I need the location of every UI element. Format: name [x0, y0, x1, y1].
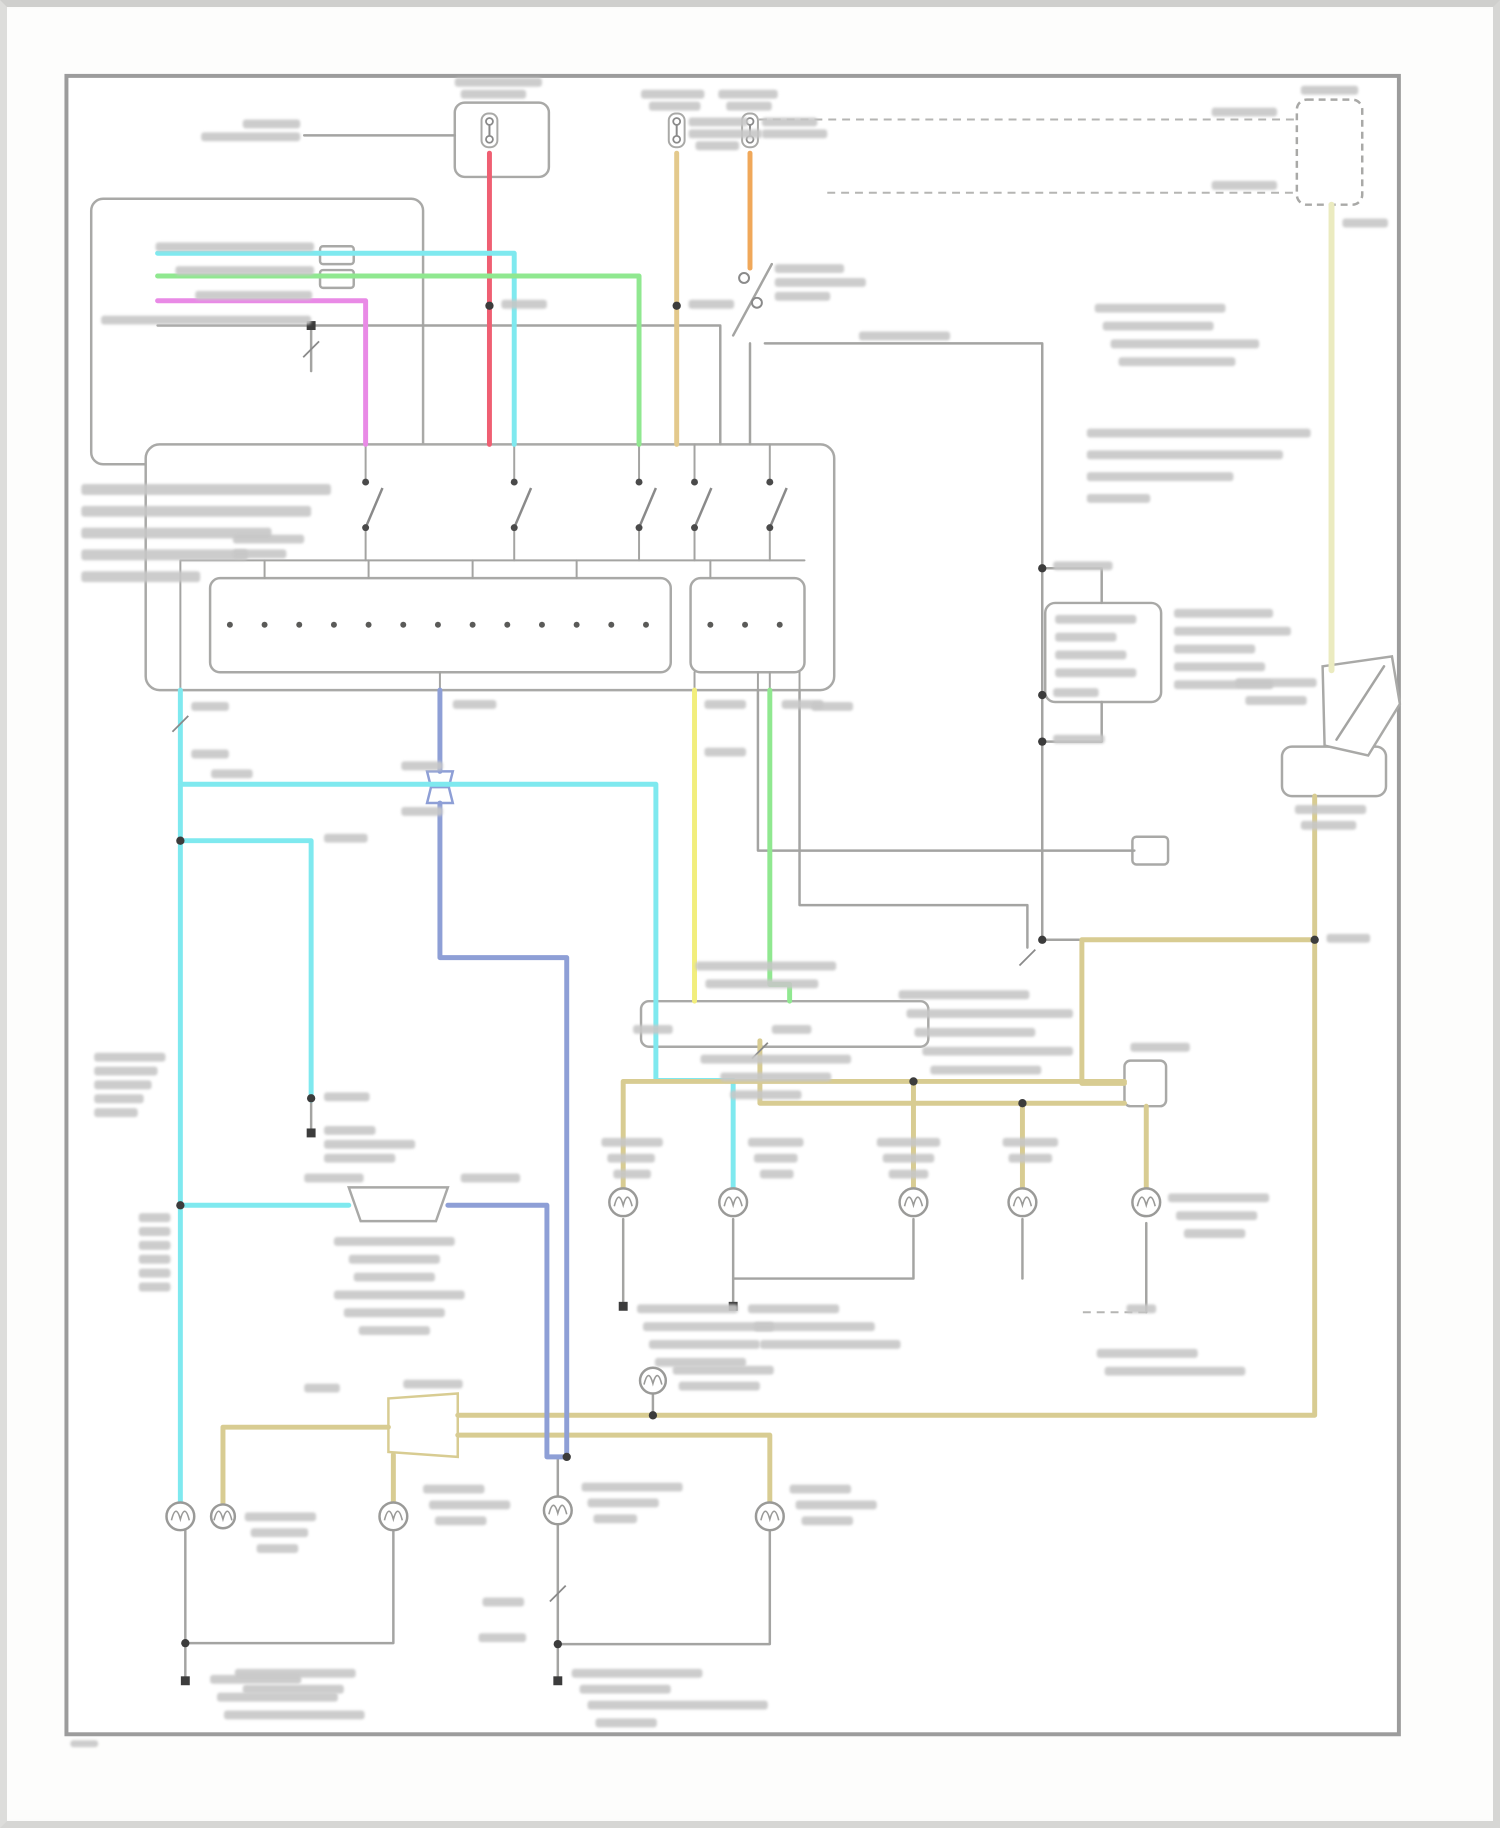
fuse-icon — [486, 118, 493, 125]
label-smudge — [1295, 805, 1366, 814]
label-smudge — [859, 331, 950, 340]
label-smudge — [1301, 86, 1358, 95]
label-smudge — [572, 1669, 703, 1678]
label-smudge — [1003, 1138, 1058, 1147]
label-smudge — [726, 102, 772, 111]
label-smudge — [304, 1384, 340, 1393]
label-smudge — [1087, 472, 1234, 481]
label-smudge — [1087, 494, 1150, 503]
label-smudge — [907, 1009, 1073, 1018]
splice-dot — [1038, 936, 1046, 944]
label-smudge — [704, 748, 746, 757]
label-smudge — [1176, 1211, 1257, 1220]
label-smudge — [718, 90, 777, 99]
label-smudge — [613, 1170, 651, 1179]
label-smudge — [655, 1358, 746, 1367]
label-smudge — [700, 1055, 851, 1064]
label-smudge — [1130, 1043, 1189, 1052]
splice-dot — [673, 302, 681, 310]
label-smudge — [324, 1126, 376, 1135]
switch-icon — [691, 524, 698, 531]
lamp-icon — [756, 1502, 784, 1530]
contact-ring — [739, 273, 749, 283]
label-smudge — [94, 1080, 151, 1089]
contact-dot — [608, 622, 614, 628]
label-smudge — [1212, 181, 1277, 190]
lamp-icon — [379, 1502, 407, 1530]
splice-dot — [176, 837, 184, 845]
label-smudge — [233, 549, 286, 558]
label-smudge — [704, 700, 746, 709]
label-smudge — [696, 962, 837, 971]
label-smudge — [94, 1053, 165, 1062]
label-smudge — [359, 1326, 430, 1335]
label-smudge — [748, 1138, 803, 1147]
label-smudge — [588, 1498, 659, 1507]
label-smudge — [334, 1290, 465, 1299]
label-smudge — [775, 264, 844, 273]
label-smudge — [748, 1304, 839, 1313]
label-smudge — [501, 300, 547, 309]
label-smudge — [593, 1514, 637, 1523]
component-box — [320, 270, 354, 288]
contact-dot — [742, 622, 748, 628]
lamp-icon — [1132, 1188, 1160, 1216]
label-smudge — [235, 1669, 356, 1678]
switch-icon — [636, 479, 643, 486]
label-smudge — [70, 1740, 98, 1747]
label-smudge — [877, 1138, 940, 1147]
label-smudge — [324, 1140, 415, 1149]
splice-dot — [563, 1453, 571, 1461]
label-smudge — [175, 266, 314, 275]
label-smudge — [94, 1094, 144, 1103]
label-smudge — [479, 1633, 527, 1642]
label-smudge — [191, 750, 229, 759]
label-smudge — [762, 118, 817, 127]
label-smudge — [139, 1227, 171, 1236]
switch-icon — [766, 479, 773, 486]
connector-shape — [349, 1187, 448, 1221]
label-smudge — [790, 1485, 851, 1494]
label-smudge — [802, 1516, 854, 1525]
label-smudge — [304, 1174, 363, 1183]
contact-dot — [331, 622, 337, 628]
label-smudge — [344, 1308, 445, 1317]
splice-dot — [1038, 691, 1046, 699]
label-smudge — [1009, 1154, 1053, 1163]
splice-dot — [176, 1201, 184, 1209]
label-smudge — [195, 291, 312, 300]
label-smudge — [243, 119, 300, 128]
label-smudge — [689, 300, 735, 309]
label-smudge — [637, 1304, 738, 1313]
contact-dot — [296, 622, 302, 628]
lamp-icon — [544, 1497, 572, 1525]
label-smudge — [1055, 650, 1126, 659]
label-smudge — [595, 1718, 656, 1727]
lamp-icon — [719, 1188, 747, 1216]
label-smudge — [403, 1380, 462, 1389]
label-smudge — [139, 1241, 171, 1250]
label-smudge — [429, 1500, 510, 1509]
label-smudge — [1301, 821, 1356, 830]
splice-dot — [1038, 564, 1046, 572]
label-smudge — [1053, 735, 1105, 744]
label-smudge — [81, 549, 247, 560]
label-smudge — [649, 102, 701, 111]
label-smudge — [720, 1073, 831, 1082]
contact-dot — [707, 622, 713, 628]
component-box — [1297, 100, 1362, 205]
label-smudge — [1174, 627, 1291, 636]
contact-dot — [227, 622, 233, 628]
label-smudge — [401, 761, 443, 770]
label-smudge — [455, 78, 542, 87]
label-smudge — [1053, 561, 1112, 570]
label-smudge — [582, 1483, 683, 1492]
label-smudge — [201, 132, 300, 141]
splice-dot — [649, 1411, 657, 1419]
label-smudge — [453, 700, 497, 709]
contact-dot — [400, 622, 406, 628]
contact-dot — [643, 622, 649, 628]
label-smudge — [772, 1025, 812, 1034]
label-smudge — [1053, 688, 1099, 697]
label-smudge — [191, 702, 229, 711]
component-box — [641, 1001, 928, 1047]
label-smudge — [796, 1500, 877, 1509]
component-box — [1132, 837, 1168, 865]
connector-shape — [388, 1393, 457, 1456]
switch-icon — [362, 524, 369, 531]
label-smudge — [1055, 615, 1136, 624]
switch-icon — [636, 524, 643, 531]
label-smudge — [233, 535, 304, 544]
label-smudge — [689, 129, 762, 138]
wiring-diagram — [7, 7, 1493, 1821]
label-smudge — [883, 1154, 935, 1163]
label-smudge — [899, 990, 1030, 999]
contact-dot — [504, 622, 510, 628]
ground-square — [619, 1302, 628, 1311]
label-smudge — [754, 1322, 875, 1331]
label-smudge — [760, 1340, 901, 1349]
contact-dot — [366, 622, 372, 628]
label-smudge — [1103, 322, 1214, 331]
lamp-icon — [609, 1188, 637, 1216]
lamp-icon — [640, 1368, 666, 1394]
label-smudge — [1212, 108, 1277, 117]
label-smudge — [1174, 645, 1255, 654]
splice-dot — [485, 302, 493, 310]
label-smudge — [461, 90, 526, 99]
label-smudge — [483, 1598, 525, 1607]
label-smudge — [673, 1366, 774, 1375]
switch-icon — [511, 479, 518, 486]
lamp-icon — [1009, 1188, 1037, 1216]
splice-dot — [1018, 1099, 1026, 1107]
label-smudge — [649, 1340, 760, 1349]
switch-icon — [362, 479, 369, 486]
label-smudge — [401, 807, 443, 816]
label-smudge — [1245, 696, 1306, 705]
ground-square — [307, 1128, 316, 1137]
label-smudge — [1087, 429, 1311, 438]
label-smudge — [588, 1701, 768, 1710]
label-smudge — [1095, 304, 1226, 313]
label-smudge — [1055, 668, 1136, 677]
label-smudge — [211, 769, 253, 778]
splice-dot — [554, 1640, 562, 1648]
label-smudge — [81, 571, 200, 582]
contact-dot — [435, 622, 441, 628]
label-smudge — [251, 1528, 308, 1537]
label-smudge — [324, 1154, 395, 1163]
label-smudge — [243, 1685, 344, 1694]
label-smudge — [930, 1066, 1041, 1075]
label-smudge — [889, 1170, 929, 1179]
label-smudge — [1342, 219, 1388, 228]
label-smudge — [94, 1067, 157, 1076]
label-smudge — [1105, 1367, 1246, 1376]
label-smudge — [1327, 934, 1371, 943]
label-smudge — [1119, 357, 1236, 366]
contact-ring — [752, 298, 762, 308]
label-smudge — [922, 1047, 1073, 1056]
label-smudge — [349, 1255, 440, 1264]
label-smudge — [775, 278, 866, 287]
label-smudge — [139, 1283, 171, 1292]
splice-dot — [1311, 936, 1319, 944]
ground-square — [181, 1676, 190, 1685]
label-smudge — [324, 1092, 370, 1101]
splice-dot — [909, 1077, 917, 1085]
label-smudge — [705, 979, 818, 988]
component-box — [455, 103, 549, 177]
label-smudge — [1087, 450, 1283, 459]
label-smudge — [324, 834, 368, 843]
ground-square — [553, 1676, 562, 1685]
label-smudge — [101, 316, 311, 325]
label-smudge — [607, 1154, 655, 1163]
fuse-icon — [673, 118, 680, 125]
splice-dot — [181, 1639, 189, 1647]
component-box — [91, 199, 423, 464]
fuse-icon — [486, 136, 493, 143]
contact-dot — [262, 622, 268, 628]
label-smudge — [435, 1516, 487, 1525]
label-smudge — [461, 1174, 520, 1183]
label-smudge — [139, 1213, 171, 1222]
label-smudge — [1111, 339, 1260, 348]
splice-dot — [1038, 737, 1046, 745]
label-smudge — [580, 1685, 671, 1694]
label-smudge — [156, 242, 315, 251]
contact-dot — [777, 622, 783, 628]
label-smudge — [257, 1544, 299, 1553]
label-smudge — [423, 1485, 484, 1494]
splice-dot — [307, 1094, 315, 1102]
lamp-icon — [900, 1188, 928, 1216]
label-smudge — [696, 141, 740, 150]
label-smudge — [601, 1138, 662, 1147]
label-smudge — [641, 90, 704, 99]
label-smudge — [139, 1255, 171, 1264]
contact-dot — [574, 622, 580, 628]
label-smudge — [245, 1512, 316, 1521]
label-smudge — [217, 1693, 338, 1702]
label-smudge — [224, 1710, 365, 1719]
component-box — [1124, 1061, 1166, 1107]
fuse-icon — [673, 136, 680, 143]
schematic-page — [0, 0, 1500, 1828]
label-smudge — [1055, 633, 1116, 642]
label-smudge — [762, 129, 827, 138]
label-smudge — [1174, 662, 1265, 671]
contact-dot — [539, 622, 545, 628]
label-smudge — [334, 1237, 455, 1246]
label-smudge — [1097, 1349, 1198, 1358]
label-smudge — [81, 506, 311, 517]
lamp-icon — [166, 1502, 194, 1530]
label-smudge — [754, 1154, 798, 1163]
label-smudge — [139, 1269, 171, 1278]
label-smudge — [1184, 1229, 1245, 1238]
label-smudge — [1126, 1304, 1156, 1313]
label-smudge — [1235, 678, 1316, 687]
switch-icon — [691, 479, 698, 486]
label-smudge — [811, 702, 853, 711]
label-smudge — [760, 1170, 794, 1179]
switch-icon — [511, 524, 518, 531]
label-smudge — [94, 1108, 138, 1117]
label-smudge — [914, 1028, 1035, 1037]
label-smudge — [679, 1382, 760, 1391]
label-smudge — [730, 1090, 801, 1099]
label-smudge — [1168, 1193, 1269, 1202]
label-smudge — [689, 118, 748, 127]
label-smudge — [775, 292, 830, 301]
contact-dot — [470, 622, 476, 628]
label-smudge — [81, 484, 331, 495]
switch-icon — [766, 524, 773, 531]
label-smudge — [633, 1025, 673, 1034]
label-smudge — [1174, 609, 1273, 618]
label-smudge — [354, 1273, 435, 1282]
